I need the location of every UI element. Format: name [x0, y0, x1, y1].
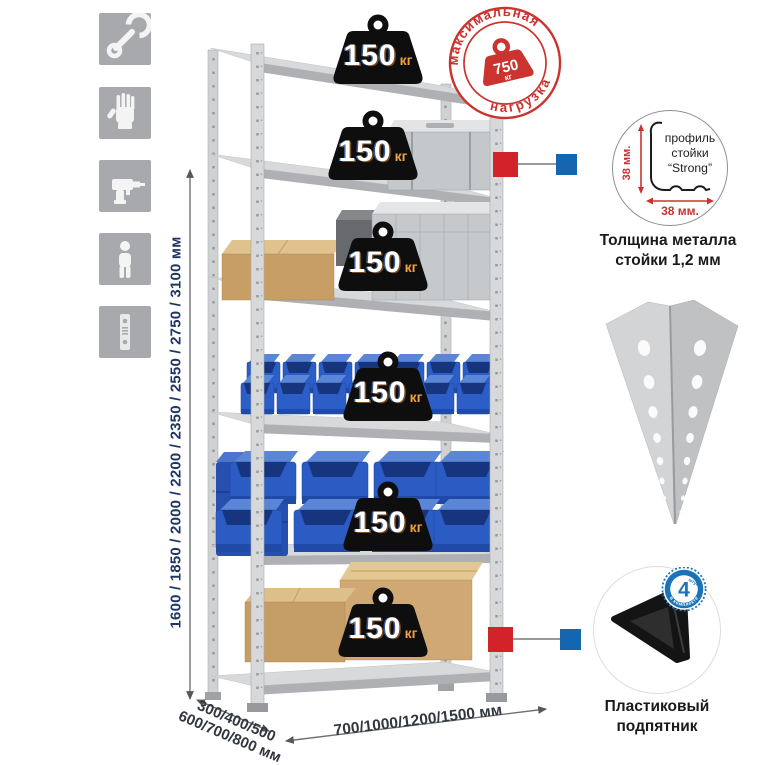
cardboard-box	[222, 240, 344, 300]
load-badge-shelf-1: 150кг	[322, 14, 434, 94]
drill-icon	[99, 160, 151, 212]
upright-profile-icon	[99, 306, 151, 358]
profile-note-3: “Strong”	[668, 161, 712, 175]
corner-post-illustration	[606, 300, 738, 524]
load-badge-shelf-2: 150кг	[317, 110, 429, 190]
kit-count-value: 4	[678, 579, 690, 602]
post-profile-detail: 38 мм. 38 мм. профиль стойки “Strong”	[612, 110, 728, 226]
load-badge-shelf-6: 150кг	[327, 587, 439, 667]
profile-width-dim: 38 мм.	[661, 204, 699, 218]
person-icon	[99, 233, 151, 285]
load-value: 150	[349, 612, 402, 645]
profile-height-dim: 38 мм.	[621, 146, 633, 181]
load-unit: кг	[410, 389, 423, 405]
product-diagram: 150кг 150кг 150кг 150кг 150кг 150кг	[0, 0, 765, 765]
load-unit: кг	[405, 625, 418, 641]
callout-top	[493, 152, 577, 177]
load-unit: кг	[395, 148, 408, 164]
load-value: 150	[349, 246, 402, 279]
load-badge-shelf-3: 150кг	[327, 221, 439, 301]
callout-bottom	[488, 627, 581, 652]
plastic-foot-caption: Пластиковый подпятник	[582, 697, 732, 737]
load-value: 150	[339, 135, 392, 168]
feature-icon-person	[99, 233, 151, 285]
load-value: 150	[354, 506, 407, 539]
load-badge-shelf-4: 150кг	[332, 351, 444, 431]
profile-note-1: профиль	[665, 131, 715, 145]
plastic-foot-detail: 4 штуки в комплекте	[593, 566, 721, 694]
profile-note-2: стойки	[671, 146, 708, 160]
load-value: 150	[354, 376, 407, 409]
profile-detail-caption: Толщина металла стойки 1,2 мм	[578, 231, 758, 271]
load-unit: кг	[400, 52, 413, 68]
height-dimension-label: 1600 / 1850 / 2000 / 2200 / 2350 / 2550 …	[168, 153, 185, 713]
load-value: 150	[344, 39, 397, 72]
load-unit: кг	[405, 259, 418, 275]
max-load-stamp: максимальная нагрузка 750 кг	[444, 2, 566, 124]
feature-icon-gloves	[99, 87, 151, 139]
feature-icon-assembly	[99, 13, 151, 65]
load-badge-shelf-5: 150кг	[332, 481, 444, 561]
wrench-icon	[99, 13, 151, 65]
gloves-icon	[99, 87, 151, 139]
feature-icon-upright	[99, 306, 151, 358]
feature-icon-drill	[99, 160, 151, 212]
load-unit: кг	[410, 519, 423, 535]
